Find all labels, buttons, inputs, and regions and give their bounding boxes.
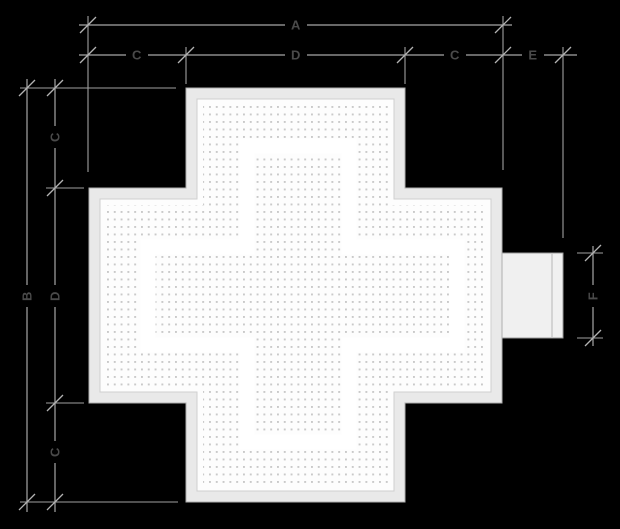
dim-label-bracket-depth: E: [528, 48, 537, 63]
bracket-body: [501, 253, 563, 338]
mounting-bracket: [501, 253, 563, 338]
dim-label-top-left-arm: C: [132, 48, 142, 63]
dim-label-top-center: D: [291, 48, 301, 63]
pharmacy-cross-dimension-diagram: A C D C E B C D C F: [0, 0, 620, 529]
dim-label-left-center: D: [48, 291, 63, 301]
dim-label-bracket-height: F: [586, 292, 601, 300]
diagram-svg: A C D C E B C D C F: [0, 0, 620, 529]
cross-sign: [89, 88, 503, 503]
dim-label-left-bottom-arm: C: [48, 447, 63, 457]
dim-label-top-total: A: [291, 18, 301, 33]
dim-label-top-right-arm: C: [450, 48, 460, 63]
dim-label-left-total: B: [20, 291, 35, 301]
dim-label-left-top-arm: C: [48, 132, 63, 142]
